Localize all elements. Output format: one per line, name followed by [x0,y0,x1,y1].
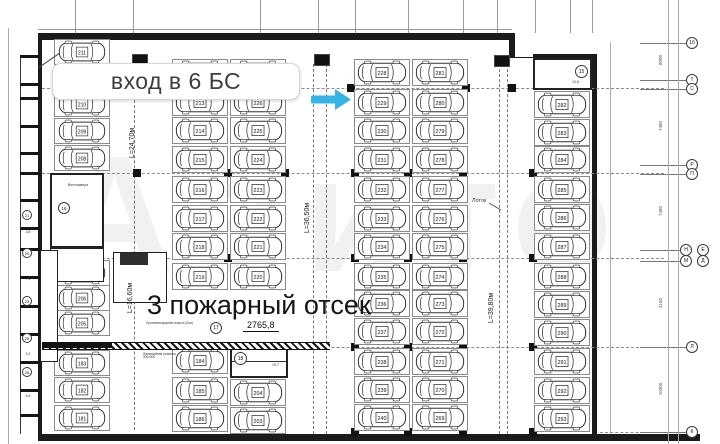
parking-space-number: 183 [78,361,87,367]
room-number-circle: 20 [22,248,32,258]
left-cell-separator [20,414,40,417]
compartment-number-circle: 17 [210,322,222,334]
parking-space-number: 274 [436,275,445,281]
car-top-view-icon: 285 [535,177,589,202]
car-top-view-icon: 204 [231,380,285,405]
parking-space-number: 181 [78,416,87,422]
parking-space-number: 276 [436,217,445,223]
parking-space-number: 229 [378,101,387,107]
parking-space-number: 213 [196,101,205,107]
left-cells-outline [20,55,21,434]
car-top-view-icon: 273 [413,291,467,316]
car-top-view-icon: 220 [231,264,285,289]
parking-space-number: 284 [558,158,567,164]
car-top-view-icon: 182 [55,378,109,402]
vent-shaft-marker [494,55,510,67]
parking-stall-214: 214 [172,117,228,144]
left-cell-separator [20,152,40,155]
grid-line-vertical-stub [592,0,593,33]
reference-line [38,29,512,30]
car-top-view-icon: 274 [413,264,467,289]
car-top-view-icon: 280 [413,90,467,115]
car-top-view-icon: 287 [535,234,589,259]
car-top-view-icon: 231 [355,147,409,172]
parking-stall-235: 235 [354,263,410,290]
car-top-view-icon: 238 [355,349,409,374]
car-top-view-icon: 289 [535,292,589,317]
room-number-circle: 25 [22,333,32,343]
lane-dash-line [326,64,327,434]
dimension-line-vertical [610,42,611,434]
room-number-circle: 21 [22,210,32,220]
parking-space-number: 285 [558,188,567,194]
parking-stall-224: 224 [230,146,286,173]
grid-line-vertical-stub [355,0,356,33]
vent-chamber-number-circle: 16 [58,202,70,214]
car-top-view-icon: 276 [413,206,467,231]
grid-line-vertical-stub [75,0,76,33]
parking-stall-272: 272 [412,318,468,345]
parking-stall-203: 203 [230,407,286,434]
grid-circle-stub [640,165,686,166]
lane-dash-line [507,64,508,434]
car-top-view-icon: 279 [413,118,467,143]
parking-space-number: 269 [436,416,445,422]
grid-circle-stub [640,43,686,44]
parking-stall-181: 181 [54,405,110,431]
parking-space-number: 228 [378,71,387,77]
left-cell-separator [20,55,40,58]
car-top-view-icon: 215 [173,147,227,172]
parking-stall-290: 290 [534,319,590,346]
car-top-view-icon: 185 [173,378,227,403]
left-cell-separator [20,83,40,86]
engineering-note: Жалюзийная решетка 300х300 [143,353,185,360]
grid-axis-circle-Л: Л [686,341,698,353]
parking-space-number: 234 [378,245,387,251]
dimension-text: 4160 [657,292,665,314]
aisle-length-label: L=16,60м [126,268,136,328]
parking-space-number: 182 [78,388,87,394]
parking-space-number: 184 [196,359,205,365]
parking-space-number: 214 [196,129,205,135]
car-top-view-icon: 205 [55,311,109,335]
car-top-view-icon: 206 [55,286,109,310]
grid-line-vertical-stub [408,0,409,33]
car-top-view-icon: 288 [535,264,589,289]
grid-line-vertical-stub [260,0,261,33]
parking-space-number: 238 [378,360,387,366]
car-top-view-icon: 216 [173,177,227,202]
left-cell-separator [20,97,40,100]
room-number-circle: 23 [22,296,32,306]
parking-stall-274: 274 [412,263,468,290]
car-top-view-icon: 235 [355,264,409,289]
parking-stall-289: 289 [534,291,590,318]
parking-space-number: 185 [196,389,205,395]
parking-space-number: 215 [196,158,205,164]
car-top-view-icon: 233 [355,206,409,231]
staircase-number-circle: 15 [575,65,588,78]
parking-stall-285: 285 [534,176,590,203]
wall-segment [38,33,42,441]
car-top-view-icon: 282 [535,92,589,117]
car-top-view-icon: 224 [231,147,285,172]
parking-stall-284: 284 [534,146,590,173]
parking-space-number: 216 [196,188,205,194]
dimension-text: 8000 [657,49,665,71]
parking-space-number: 239 [378,388,387,394]
lane-dash-line [499,64,500,434]
parking-space-number: 231 [378,158,387,164]
fire-separation-wall-solid [42,342,112,348]
car-top-view-icon: 283 [535,120,589,145]
grid-circle-stub [640,174,686,175]
car-top-view-icon: 272 [413,319,467,344]
car-top-view-icon: 270 [413,377,467,402]
car-top-view-icon: 293 [535,406,589,431]
fire-compartment-label: 3 пожарный отсек [147,290,371,321]
parking-space-number: 240 [378,416,387,422]
car-top-view-icon: 223 [231,177,285,202]
car-top-view-icon: 214 [173,118,227,143]
parking-stall-240: 240 [354,404,410,431]
car-top-view-icon: 218 [173,234,227,259]
grid-axis-circle-Д: Д [697,255,709,267]
parking-stall-275: 275 [412,233,468,260]
parking-stall-273: 273 [412,290,468,317]
wall-segment [512,57,535,58]
car-top-view-icon: 237 [355,319,409,344]
room-number-circle: 26 [22,367,32,377]
left-cell-separator [20,389,40,392]
parking-space-number: 226 [254,101,263,107]
car-top-view-icon: 217 [173,206,227,231]
parking-stall-279: 279 [412,117,468,144]
dimension-text: 10300 [657,378,665,400]
width-dimension-label: 2765,8 [243,320,279,332]
wall-segment [592,58,597,441]
parking-space-number: 206 [78,296,87,302]
parking-stall-283: 283 [534,119,590,146]
car-top-view-icon: 269 [413,405,467,430]
car-top-view-icon: 219 [173,264,227,289]
parking-space-number: 203 [254,419,263,425]
parking-stall-211: 211 [54,39,110,65]
entrance-annotation-badge: вход в 6 БС [52,63,300,100]
car-top-view-icon: 284 [535,147,589,172]
car-top-view-icon: 278 [413,147,467,172]
aisle-length-label: L=24,70м [128,113,138,173]
left-cell-separator [20,305,40,308]
parking-stall-215: 215 [172,146,228,173]
parking-space-number: 275 [436,245,445,251]
aisle-length-label: L=39,80м [487,278,497,338]
car-top-view-icon: 228 [355,60,409,85]
parking-space-number: 222 [254,217,263,223]
parking-space-number: 281 [436,71,445,77]
parking-space-number: 270 [436,388,445,394]
car-top-view-icon: 221 [231,234,285,259]
car-top-view-icon: 225 [231,118,285,143]
parking-stall-288: 288 [534,263,590,290]
dimension-line-vertical [668,0,669,444]
parking-space-number: 186 [196,417,205,423]
parking-space-number: 287 [558,245,567,251]
grid-line-vertical-stub [535,0,536,33]
parking-stall-204: 204 [230,379,286,406]
parking-stall-237: 237 [354,318,410,345]
parking-stall-208: 208 [54,145,110,171]
room-area-label: 3,8 [22,231,34,235]
parking-stall-280: 280 [412,89,468,116]
car-top-view-icon: 208 [55,146,109,170]
staircase-area-label: 19,7 [272,364,279,368]
parking-space-number: 277 [436,188,445,194]
parking-stall-281: 281 [412,59,468,86]
parking-space-number: 292 [558,389,567,395]
room-area-label: 7,6 [22,278,34,282]
car-top-view-icon: 209 [55,119,109,143]
parking-stall-239: 239 [354,376,410,403]
parking-stall-225: 225 [230,117,286,144]
left-cell-separator [20,199,40,202]
car-top-view-icon: 239 [355,377,409,402]
parking-space-number: 288 [558,275,567,281]
car-top-view-icon: 286 [535,205,589,230]
parking-stall-286: 286 [534,204,590,231]
parking-stall-183: 183 [54,350,110,376]
parking-stall-270: 270 [412,376,468,403]
grid-line-vertical-stub [570,0,571,33]
parking-space-number: 220 [254,275,263,281]
room-area-label: 6,6 [22,395,34,399]
parking-stall-209: 209 [54,118,110,144]
car-top-view-icon: 275 [413,234,467,259]
vent-shaft-marker [314,54,330,66]
parking-space-number: 290 [558,331,567,337]
parking-space-number: 293 [558,417,567,423]
parking-stall-218: 218 [172,233,228,260]
parking-stall-185: 185 [172,377,228,404]
room-area-label: 5,2 [22,353,34,357]
left-cell-separator [20,227,40,230]
parking-stall-230: 230 [354,117,410,144]
parking-space-number: 204 [254,391,263,397]
grid-circle-stub [640,89,686,90]
dimension-text: 7480 [657,200,665,222]
grid-line-vertical-stub [463,0,464,33]
parking-stall-269: 269 [412,404,468,431]
parking-space-number: 218 [196,245,205,251]
engineering-note: Противопожарные ворота (2шт) [146,322,194,325]
parking-space-number: 219 [196,275,205,281]
direction-arrow [311,86,353,113]
parking-stall-278: 278 [412,146,468,173]
parking-stall-234: 234 [354,233,410,260]
parking-space-number: 230 [378,129,387,135]
staircase-number-circle: 18 [234,352,247,365]
grid-circle-stub [640,80,686,81]
elevator-shaft-block [120,253,148,265]
parking-space-number: 224 [254,158,263,164]
car-top-view-icon: 281 [413,60,467,85]
grid-axis-circle-К: К [686,426,698,438]
parking-space-number: 225 [254,129,263,135]
parking-stall-229: 229 [354,89,410,116]
grid-axis-circle-М: М [680,255,692,267]
car-top-view-icon: 184 [173,348,227,373]
car-top-view-icon: 240 [355,405,409,430]
dimension-text: 7480 [657,115,665,137]
parking-stall-219: 219 [172,263,228,290]
parking-stall-238: 238 [354,348,410,375]
car-top-view-icon: 230 [355,118,409,143]
parking-stall-221: 221 [230,233,286,260]
dimension-line-vertical [8,28,9,444]
grid-circle-stub [640,347,686,348]
car-top-view-icon: 291 [535,349,589,374]
grid-line-vertical-stub [318,0,319,33]
car-top-view-icon: 181 [55,406,109,430]
parking-space-number: 235 [378,275,387,281]
parking-space-number: 282 [558,103,567,109]
parking-stall-182: 182 [54,377,110,403]
left-cell-separator [20,361,40,364]
car-top-view-icon: 290 [535,320,589,345]
parking-stall-271: 271 [412,348,468,375]
parking-floor-plan: Авито 21202325263,87,65,26,6211210209208… [0,0,720,444]
car-top-view-icon: 203 [231,408,285,433]
parking-space-number: 205 [78,321,87,327]
parking-space-number: 286 [558,216,567,222]
grid-line-vertical-stub [497,0,498,33]
parking-stall-223: 223 [230,176,286,203]
parking-stall-277: 277 [412,176,468,203]
parking-space-number: 211 [78,50,86,56]
wall-segment [38,434,700,441]
car-top-view-icon: 222 [231,206,285,231]
parking-space-number: 208 [78,156,87,162]
parking-stall-233: 233 [354,205,410,232]
car-top-view-icon: 183 [55,351,109,375]
parking-stall-231: 231 [354,146,410,173]
parking-stall-222: 222 [230,205,286,232]
parking-stall-205: 205 [54,310,110,336]
column-marker [508,84,516,92]
parking-stall-291: 291 [534,348,590,375]
car-top-view-icon: 232 [355,177,409,202]
grid-circle-stub [640,432,686,433]
car-top-view-icon: 277 [413,177,467,202]
vent-chamber-label: Венткамера [56,184,100,188]
car-top-view-icon: 186 [173,406,227,431]
grid-line-vertical-stub [133,0,134,33]
parking-space-number: 236 [378,302,387,308]
parking-space-number: 283 [558,131,567,137]
parking-space-number: 237 [378,330,387,336]
car-top-view-icon: 234 [355,234,409,259]
parking-space-number: 223 [254,188,263,194]
parking-stall-293: 293 [534,405,590,432]
parking-space-number: 273 [436,302,445,308]
parking-space-number: 279 [436,129,445,135]
grid-axis-circle-С: С [686,83,698,95]
grid-axis-circle-1б: 1б [686,37,698,49]
parking-stall-232: 232 [354,176,410,203]
parking-stall-184: 184 [172,347,228,374]
parking-stall-282: 282 [534,91,590,118]
parking-space-number: 291 [558,360,567,366]
parking-stall-216: 216 [172,176,228,203]
parking-space-number: 210 [78,102,87,108]
parking-stall-186: 186 [172,405,228,432]
car-top-view-icon: 271 [413,349,467,374]
parking-space-number: 280 [436,101,445,107]
car-top-view-icon: 292 [535,378,589,403]
vent-chamber-lobby [50,248,104,282]
parking-stall-292: 292 [534,377,590,404]
parking-space-number: 233 [378,217,387,223]
car-top-view-icon: 229 [355,90,409,115]
parking-space-number: 209 [78,129,87,135]
left-cell-separator [20,125,40,128]
parking-space-number: 278 [436,158,445,164]
parking-stall-206: 206 [54,285,110,311]
parking-space-number: 232 [378,188,387,194]
parking-space-number: 272 [436,330,445,336]
parking-stall-220: 220 [230,263,286,290]
drainage-channel-label: Лоток [472,199,486,205]
aisle-length-label: L=36,50м [303,188,313,248]
car-top-view-icon: 211 [55,40,109,64]
parking-space-number: 221 [254,245,263,251]
parking-stall-287: 287 [534,233,590,260]
grid-axis-circle-П: П [686,168,698,180]
left-cell-separator [20,172,40,175]
staircase-area-label: 10,6 [572,81,579,85]
parking-space-number: 271 [436,360,445,366]
dimension-line-vertical [678,0,679,444]
parking-space-number: 289 [558,303,567,309]
parking-stall-276: 276 [412,205,468,232]
parking-space-number: 217 [196,217,205,223]
parking-stall-217: 217 [172,205,228,232]
lane-dash-line [313,64,314,434]
parking-stall-228: 228 [354,59,410,86]
